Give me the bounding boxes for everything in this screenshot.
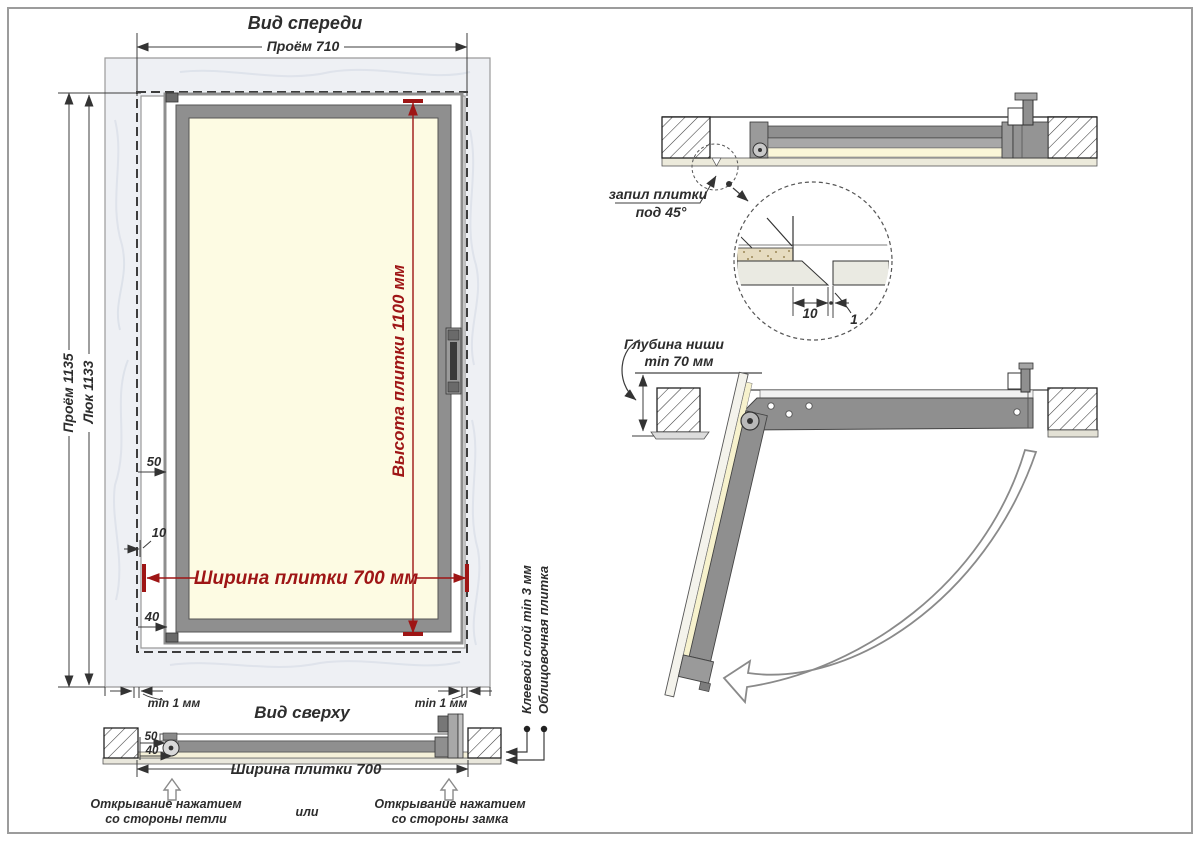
open-lock-label-2: со стороны замка	[392, 812, 509, 826]
top-view-title: Вид сверху	[254, 703, 351, 722]
dim-50-label: 50	[147, 454, 162, 469]
leader-dot	[726, 181, 732, 187]
hinge-pivot-center	[747, 418, 753, 424]
door-tile-strip	[137, 752, 468, 758]
min-gap-right-label: min 1 мм	[415, 696, 468, 710]
door-lock-tab	[699, 682, 711, 692]
niche-depth-label-1: Глубина ниши	[624, 336, 724, 352]
hinge-bracket	[163, 733, 177, 740]
door-leaf-top	[160, 734, 455, 741]
dim-10-label: 10	[152, 525, 167, 540]
wall-block-right	[468, 728, 501, 758]
beam-flange	[760, 390, 1033, 398]
top-tile-width-label: Ширина плитки 700	[231, 761, 382, 778]
open-hinge-label-2: со стороны петли	[105, 812, 227, 826]
drawing-canvas: Вид спереди Проём 710 Проём 1135 Люк 113…	[0, 0, 1200, 841]
tile-lip-right	[1048, 430, 1098, 437]
facing-tile-label: Облицовочная плитка	[536, 566, 551, 714]
front-view: Вид спереди Проём 710 Проём 1135 Люк 113…	[58, 13, 492, 710]
dim-opening-height-label: Проём 1135	[60, 353, 76, 433]
latch	[446, 328, 461, 394]
niche-depth-label-2: min 70 мм	[645, 353, 715, 369]
dim-hatch-height-label: Люк 1133	[80, 360, 96, 424]
open-lock-label-1: Открывание нажатием	[374, 797, 525, 811]
wall-block-right	[1048, 117, 1097, 158]
wall-block-left	[657, 388, 700, 432]
tile-height-label: Высота плитки 1100 мм	[389, 264, 408, 477]
top-dim-40-label: 40	[145, 745, 159, 757]
wall-block-left	[662, 117, 710, 158]
wall-block-left	[104, 728, 138, 758]
frame-profile	[178, 741, 452, 752]
tile-layer	[662, 158, 1097, 166]
hinge-pin-center	[169, 746, 174, 751]
hinge-top	[166, 93, 178, 102]
door-profile	[750, 122, 1048, 158]
dim-40-label: 40	[144, 609, 160, 624]
frame-beam	[741, 398, 1033, 430]
top-dim-50-label: 50	[145, 731, 158, 743]
glue-layer-label: Клеевой слой min 3 мм	[519, 565, 534, 714]
hinge-bottom	[166, 633, 178, 642]
wall-block-right	[1048, 388, 1097, 430]
tile-lip-left	[651, 432, 709, 439]
cut-label-2: под 45°	[636, 204, 687, 220]
min-gap-left-label: min 1 мм	[148, 696, 201, 710]
open-hinge-label-1: Открывание нажатием	[90, 797, 241, 811]
cut-label-1: запил плитки	[609, 186, 708, 202]
dim-opening-width-label: Проём 710	[267, 38, 340, 54]
technical-drawing: Вид спереди Проём 710 Проём 1135 Люк 113…	[0, 0, 1200, 841]
tile-width-label: Ширина плитки 700 мм	[194, 568, 418, 589]
or-label: или	[295, 805, 318, 819]
detail-dim-1-label: 1	[850, 312, 858, 327]
front-view-title: Вид спереди	[248, 13, 363, 33]
detail-dim-10-label: 10	[802, 306, 818, 321]
